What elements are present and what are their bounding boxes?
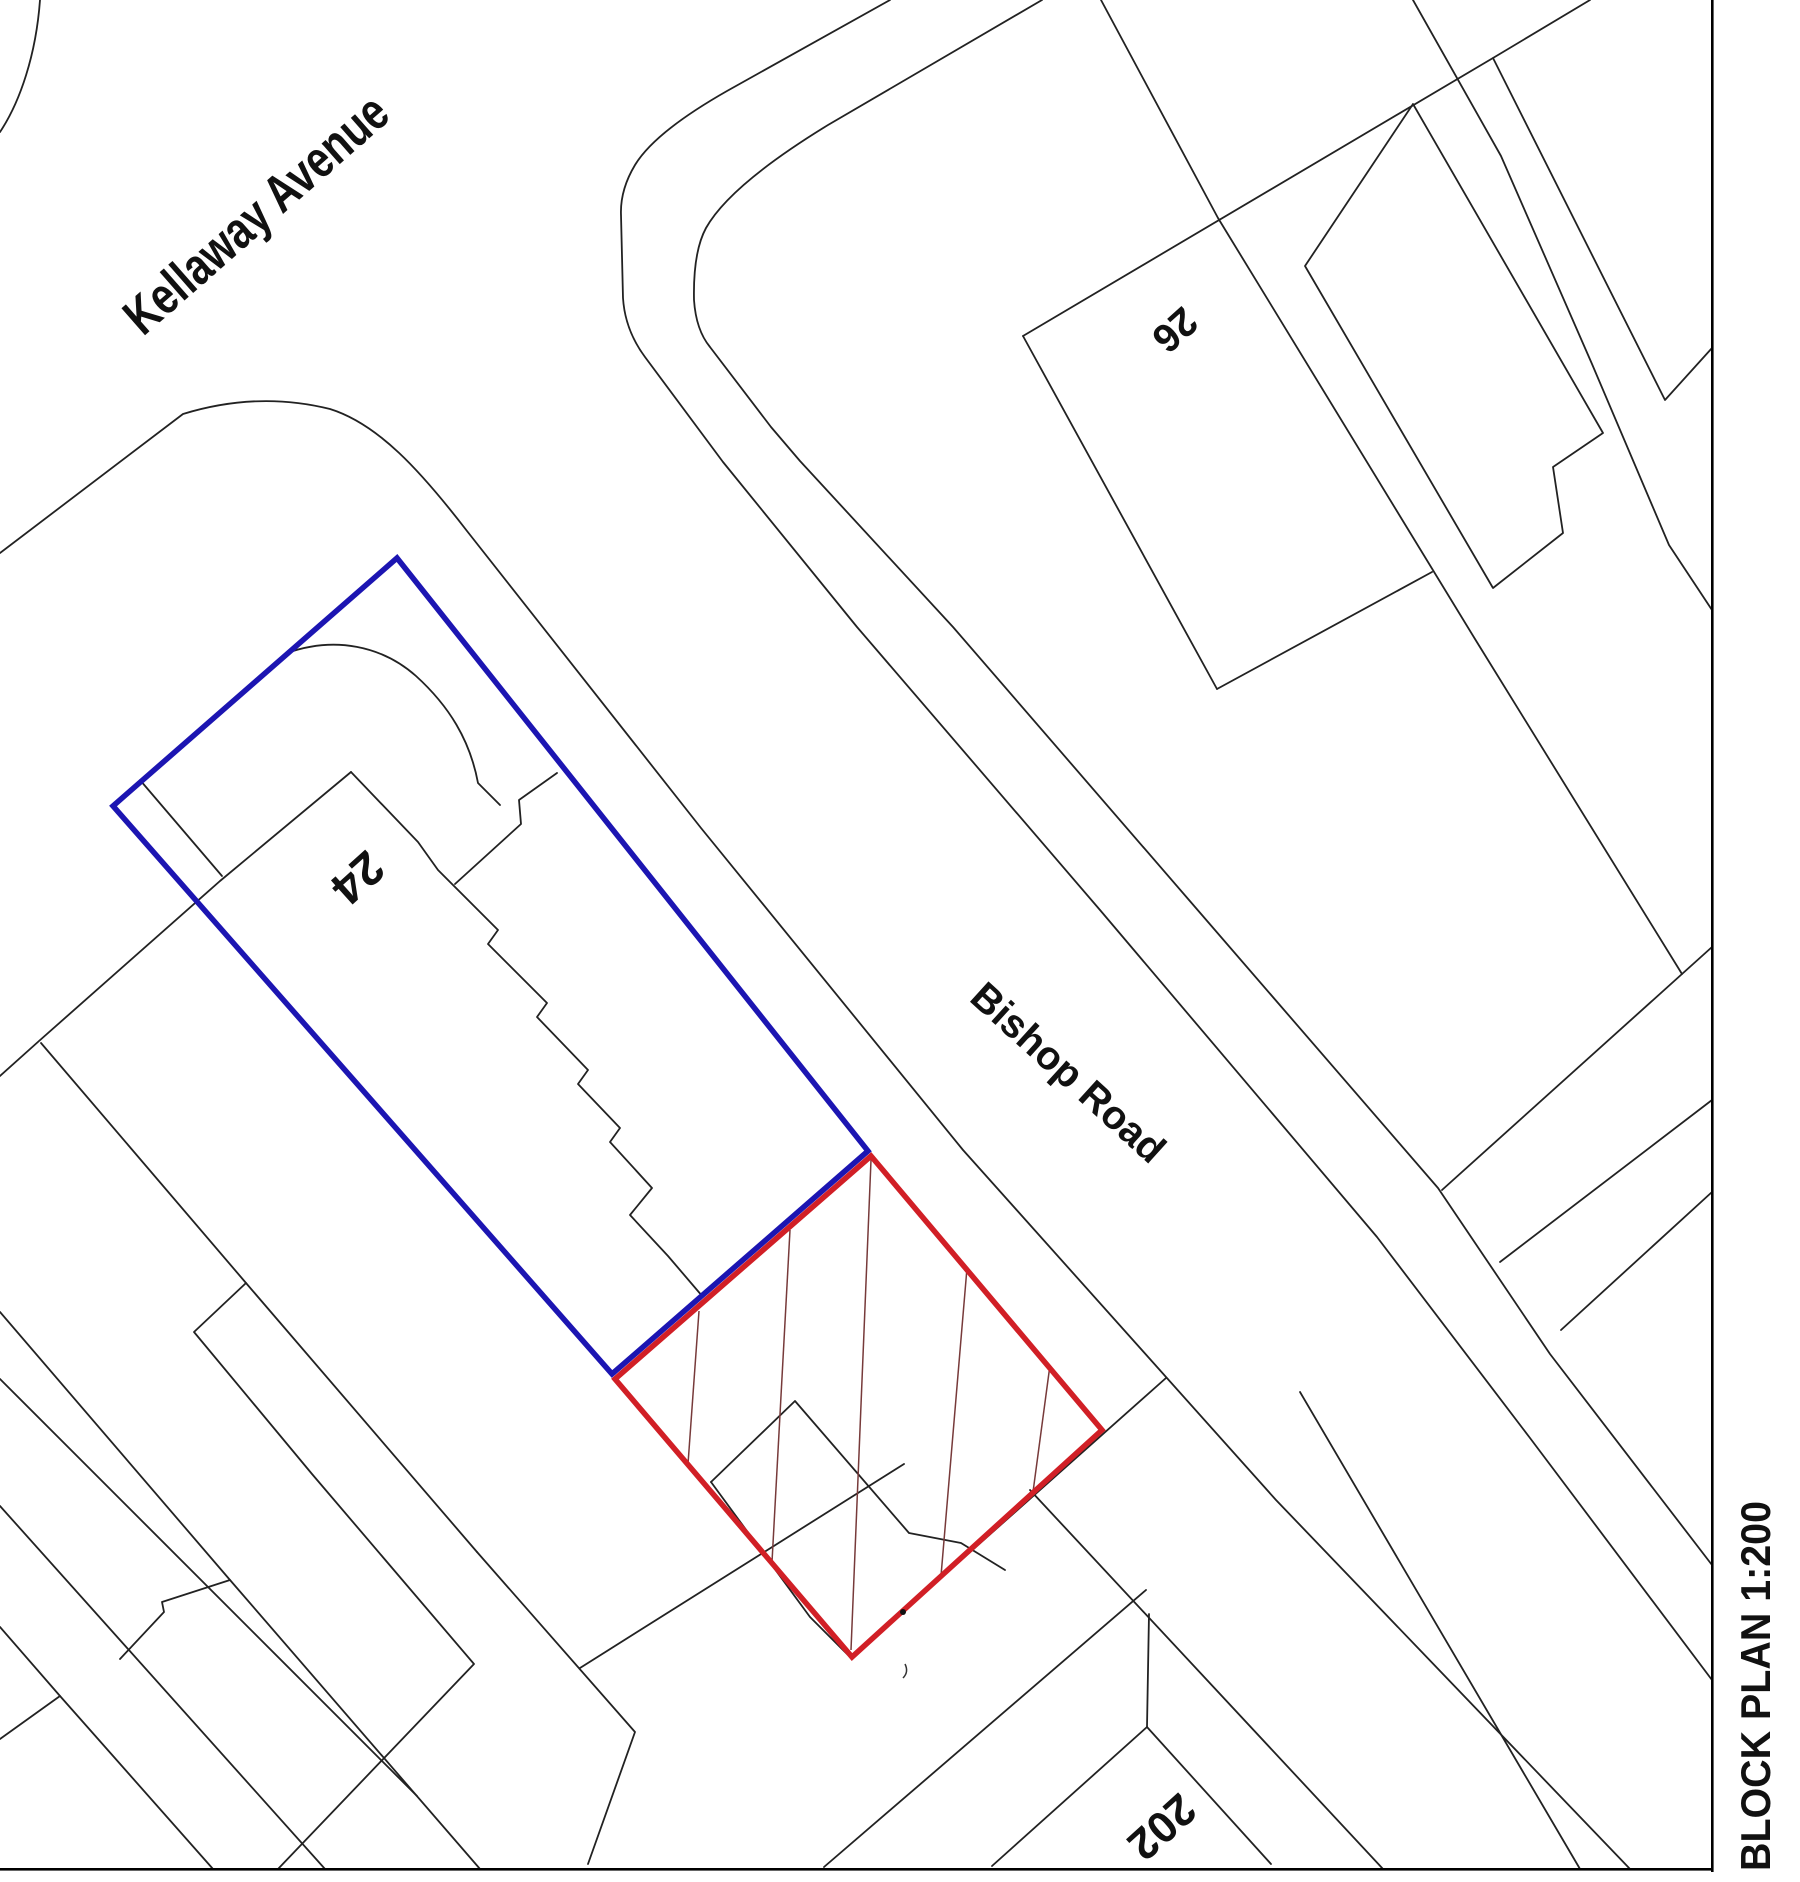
svg-text:202: 202 xyxy=(1118,1784,1205,1870)
svg-text:BLOCK PLAN 1:200: BLOCK PLAN 1:200 xyxy=(1732,1501,1779,1871)
svg-text:24: 24 xyxy=(321,841,395,915)
svg-text:Bishop Road: Bishop Road xyxy=(962,974,1174,1172)
svg-text:26: 26 xyxy=(1143,298,1206,360)
svg-text:Kellaway Avenue: Kellaway Avenue xyxy=(113,83,401,346)
